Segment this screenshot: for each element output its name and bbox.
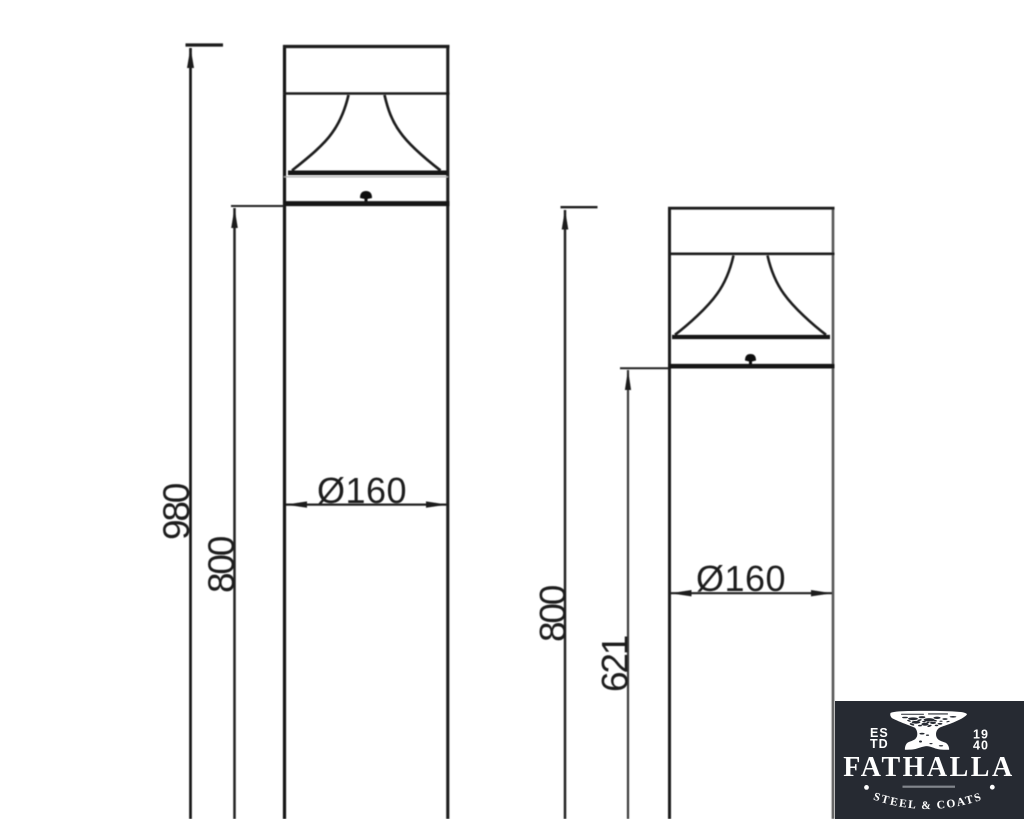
svg-text:621: 621: [595, 636, 636, 692]
svg-text:800: 800: [201, 536, 242, 593]
svg-text:980: 980: [156, 483, 197, 540]
svg-text:800: 800: [533, 585, 574, 642]
svg-text:Ø160: Ø160: [317, 470, 407, 511]
svg-text:TD: TD: [870, 737, 889, 751]
svg-text:FATHALLA: FATHALLA: [843, 752, 1014, 783]
svg-text:Ø160: Ø160: [696, 558, 786, 599]
svg-text:40: 40: [973, 739, 989, 753]
